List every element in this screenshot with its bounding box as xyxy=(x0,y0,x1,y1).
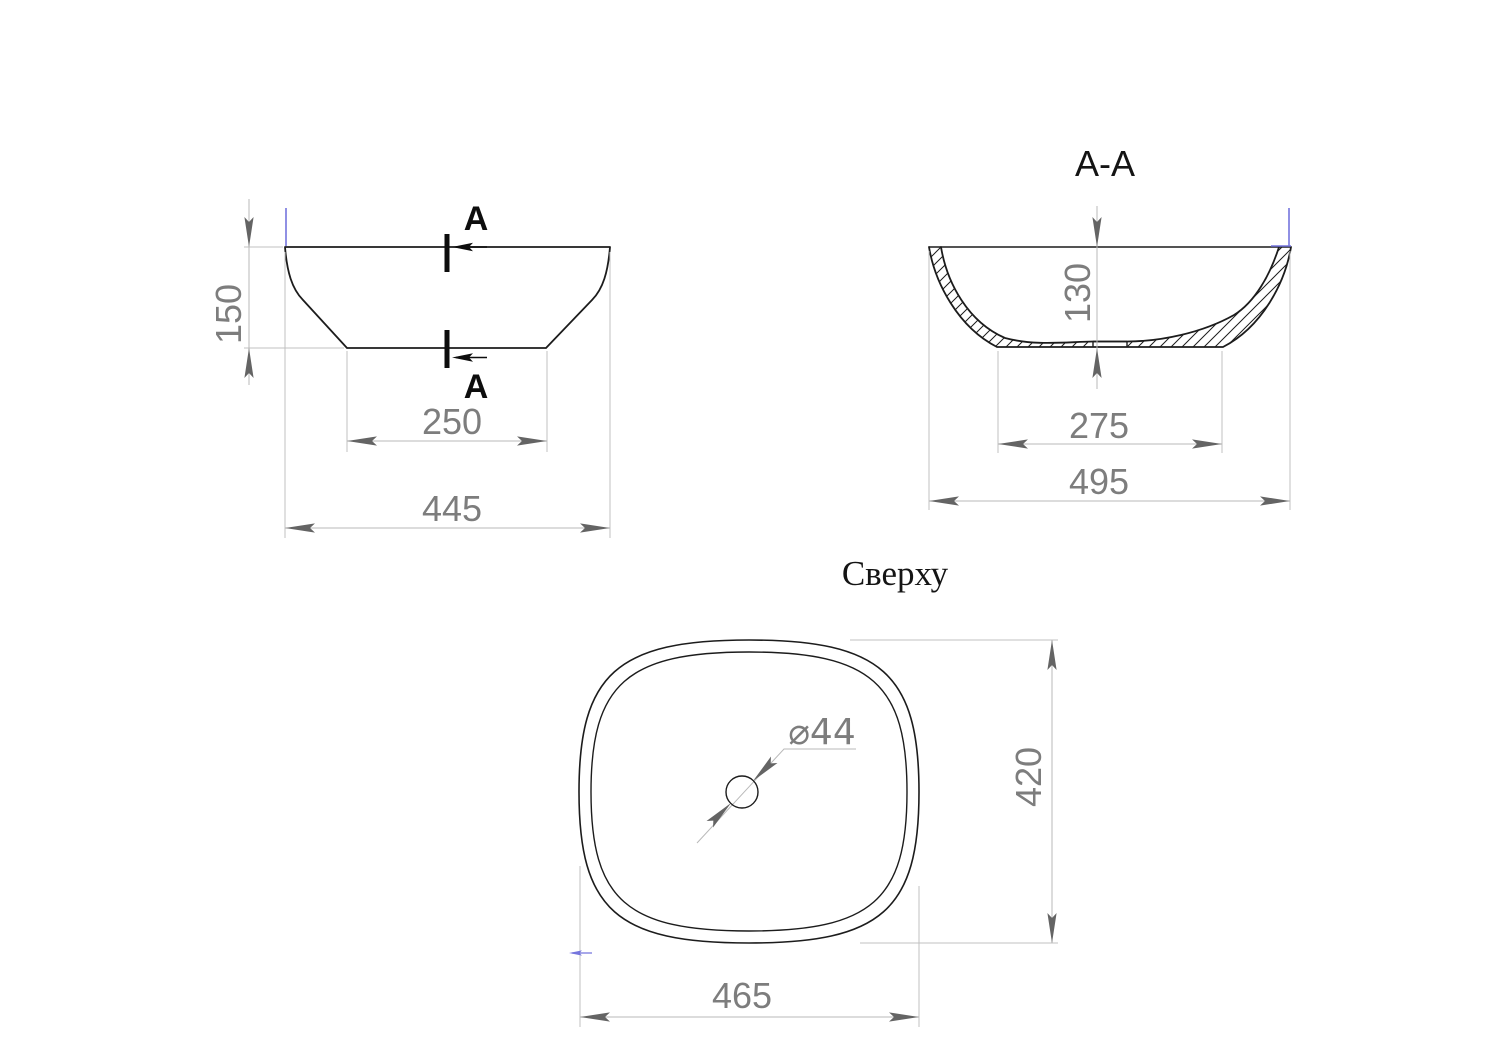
top-extension-lines xyxy=(580,640,1058,1027)
front-dim-height: 150 xyxy=(208,199,254,385)
section-dim-depth-label: 130 xyxy=(1057,263,1098,323)
drawing-canvas: 150 250 445 A A xyxy=(0,0,1500,1061)
section-blue-mark xyxy=(1271,208,1291,246)
section-dim-depth: 130 xyxy=(1057,206,1102,389)
front-dim-bottom-width: 250 xyxy=(347,401,547,446)
top-dim-height: 420 xyxy=(1008,640,1057,943)
section-cut-marker-bottom: A xyxy=(445,330,489,406)
section-wall-hatch-right xyxy=(1127,247,1291,347)
front-dim-top-width: 445 xyxy=(285,488,610,533)
top-dim-width: 465 xyxy=(580,975,919,1022)
section-cut-marker-top: A xyxy=(445,200,489,272)
top-outer-rim xyxy=(579,640,919,943)
section-label-top: A xyxy=(464,200,489,238)
section-dim-top-width-label: 495 xyxy=(1069,461,1129,502)
front-dim-bottom-width-label: 250 xyxy=(422,401,482,442)
technical-drawing-svg: 150 250 445 A A xyxy=(0,0,1500,1061)
section-dim-top-width: 495 xyxy=(929,461,1290,506)
top-view-title: Сверху xyxy=(842,554,949,593)
front-dim-height-label: 150 xyxy=(208,284,249,344)
front-dim-top-width-label: 445 xyxy=(422,488,482,529)
section-view: A-A 130 275 xyxy=(929,143,1291,510)
section-view-title: A-A xyxy=(1075,143,1135,184)
top-view: Сверху ⌀44 420 465 xyxy=(569,554,1058,1027)
top-inner-rim xyxy=(591,652,907,931)
drain-diameter-label: ⌀44 xyxy=(788,712,855,753)
front-view: 150 250 445 A A xyxy=(208,199,610,538)
section-dim-bottom-width-label: 275 xyxy=(1069,405,1129,446)
top-dim-width-label: 465 xyxy=(712,975,772,1016)
top-dim-height-label: 420 xyxy=(1008,747,1049,807)
section-label-bottom: A xyxy=(464,368,489,406)
top-blue-mark xyxy=(569,950,592,955)
section-dim-bottom-width: 275 xyxy=(998,405,1222,449)
